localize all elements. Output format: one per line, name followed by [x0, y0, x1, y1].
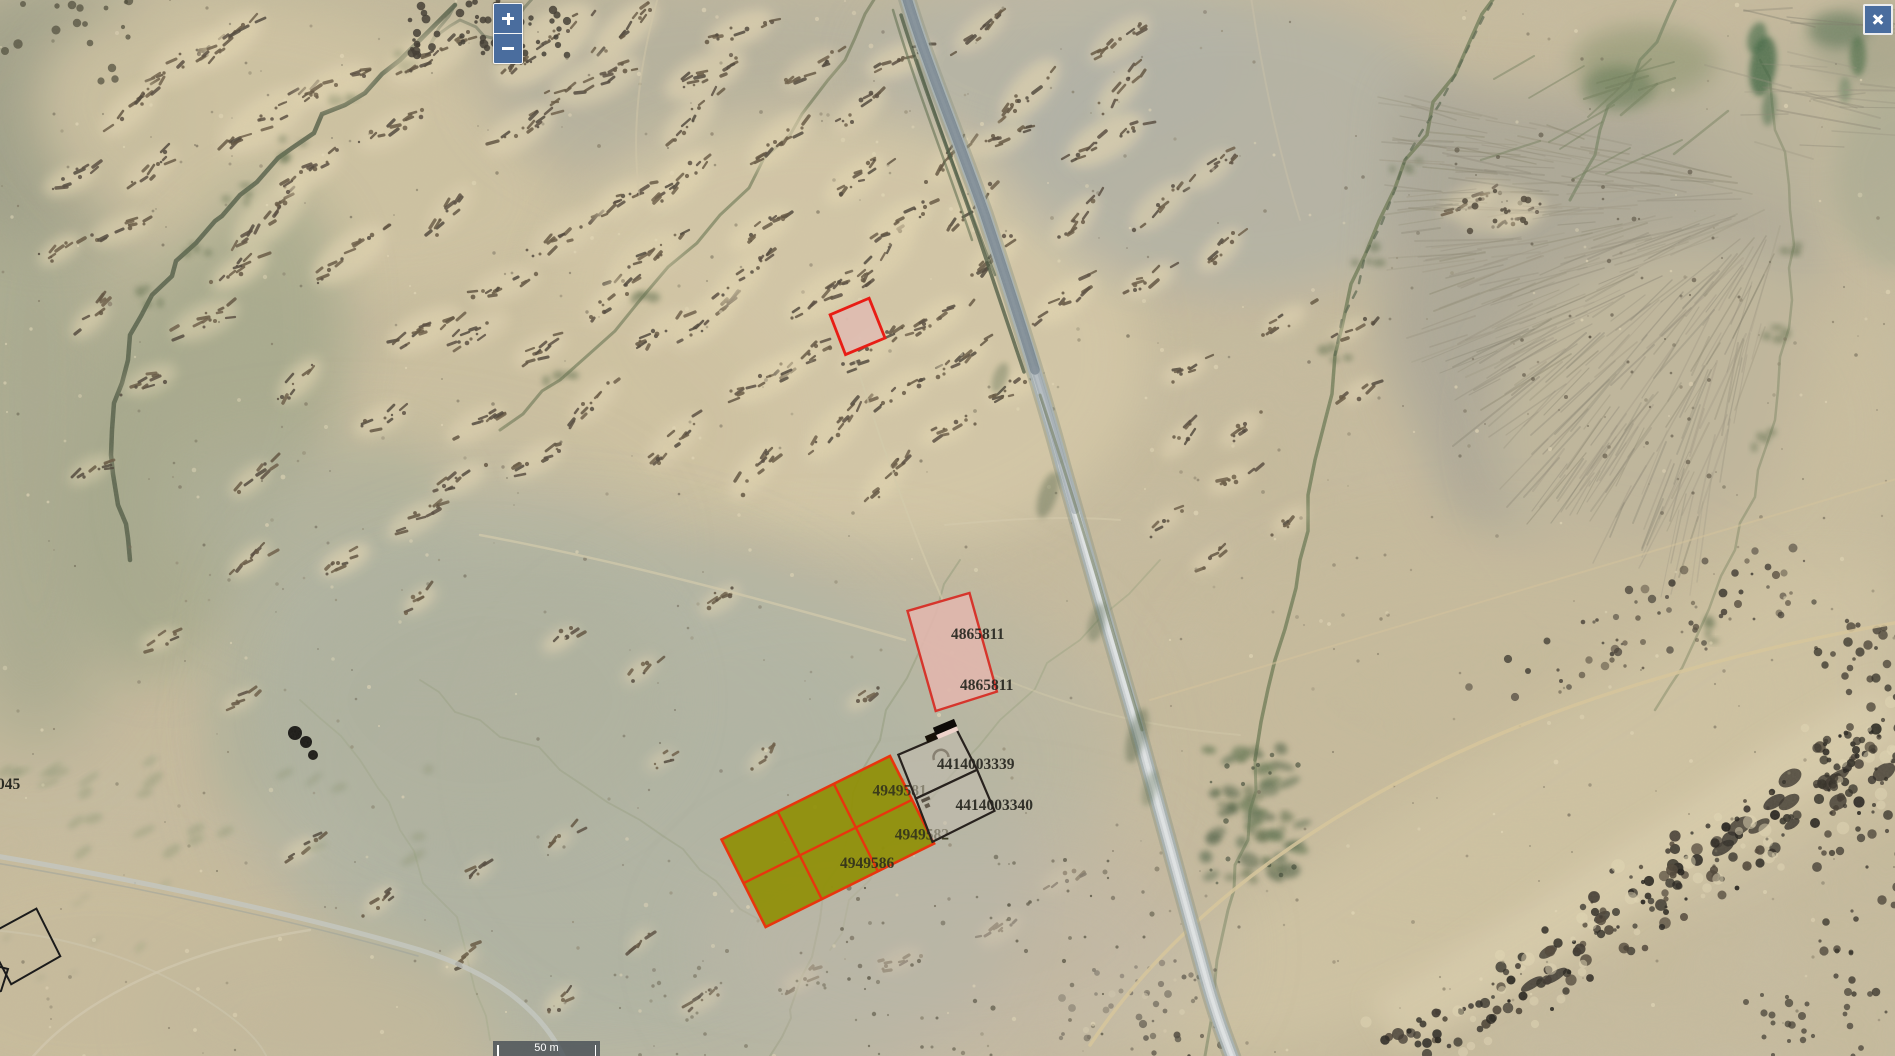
svg-text:4865811: 4865811: [951, 626, 1004, 643]
svg-text:045: 045: [0, 776, 21, 793]
svg-text:4414003340: 4414003340: [956, 797, 1034, 814]
svg-text:4865811: 4865811: [960, 677, 1013, 694]
svg-text:4414003339: 4414003339: [937, 756, 1015, 773]
svg-text:4949586: 4949586: [840, 855, 895, 872]
